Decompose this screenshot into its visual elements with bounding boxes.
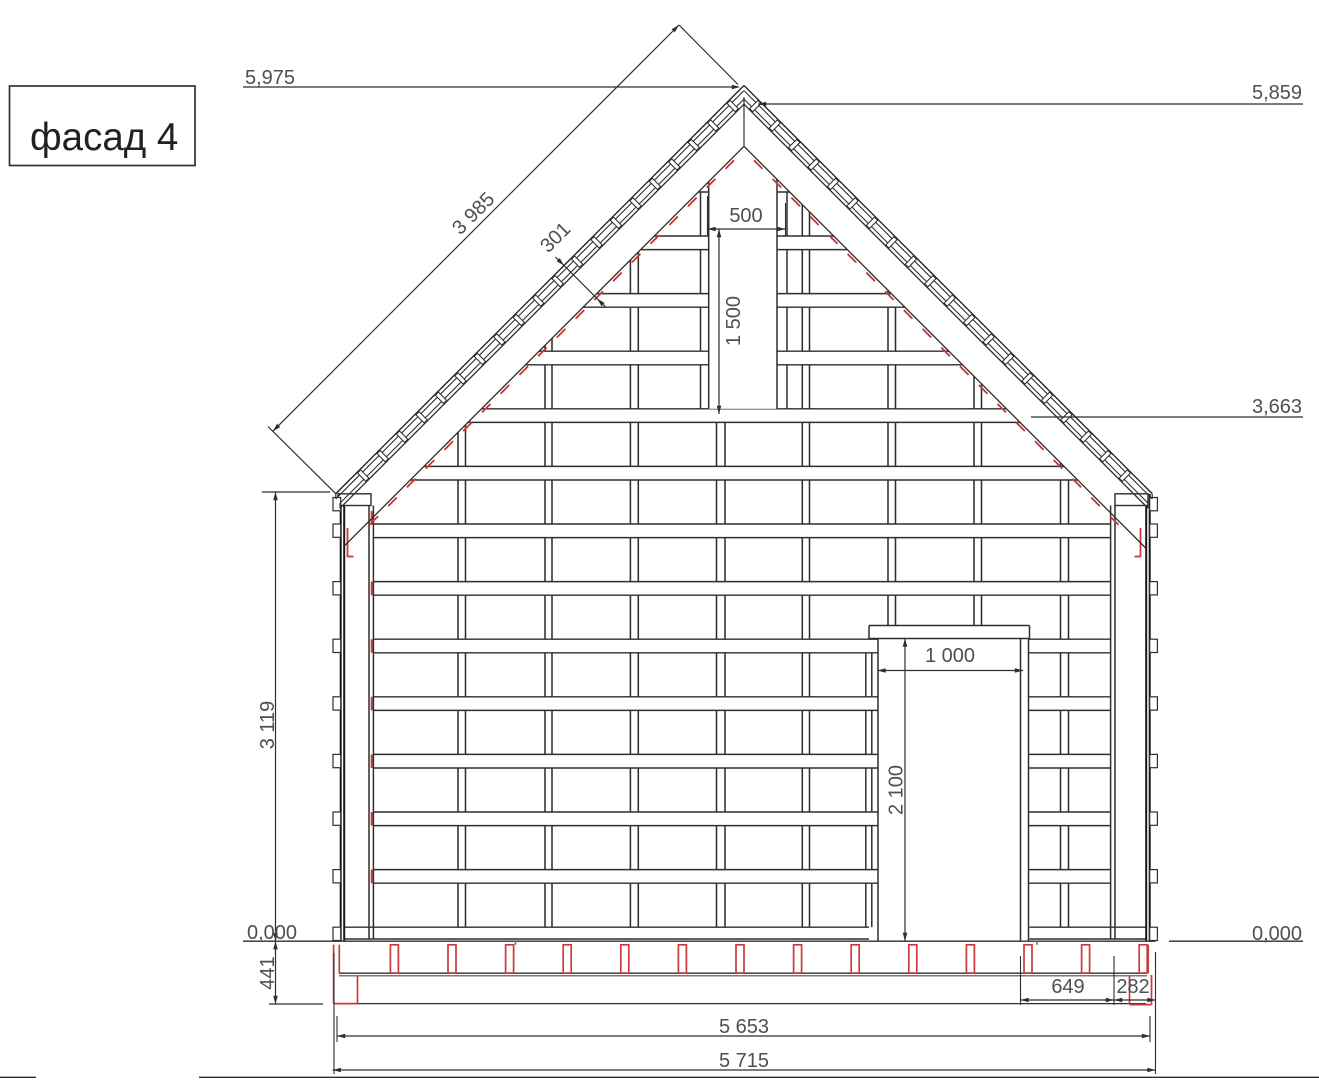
svg-text:фасад 4: фасад 4 xyxy=(30,116,178,159)
svg-text:2 100: 2 100 xyxy=(886,765,908,815)
svg-text:1 000: 1 000 xyxy=(925,645,975,667)
svg-text:282: 282 xyxy=(1116,976,1149,998)
svg-text:5,975: 5,975 xyxy=(245,67,295,89)
svg-text:5 653: 5 653 xyxy=(719,1016,769,1038)
svg-text:0,000: 0,000 xyxy=(1252,923,1302,945)
svg-text:441: 441 xyxy=(257,956,279,989)
svg-text:0,000: 0,000 xyxy=(247,922,297,944)
svg-text:3,663: 3,663 xyxy=(1252,396,1302,418)
svg-text:5 715: 5 715 xyxy=(719,1050,769,1072)
svg-text:649: 649 xyxy=(1051,976,1084,998)
svg-text:500: 500 xyxy=(729,205,762,227)
svg-text:1 500: 1 500 xyxy=(723,296,745,346)
svg-text:3 119: 3 119 xyxy=(257,701,279,750)
svg-text:5,859: 5,859 xyxy=(1252,82,1302,104)
